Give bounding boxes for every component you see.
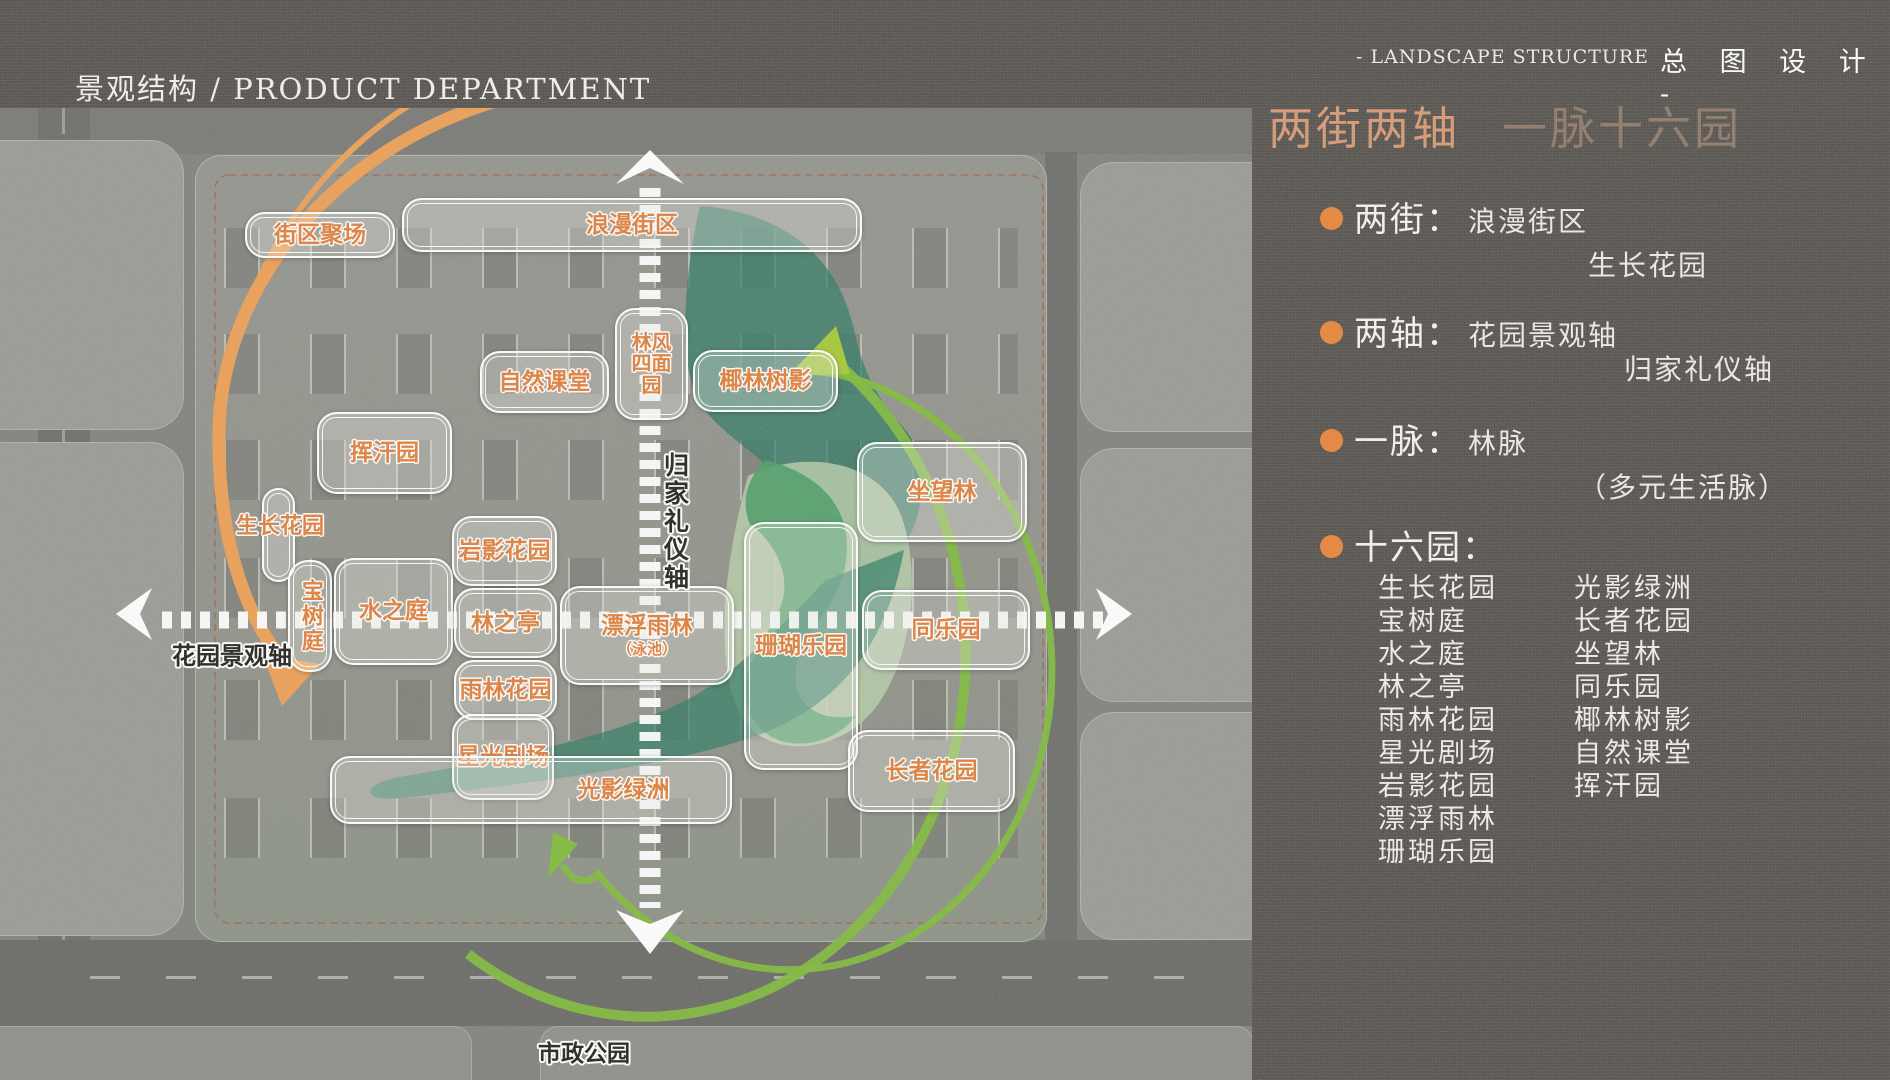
label-growth-garden-map: 生长花园	[220, 514, 340, 540]
label-block-plaza: 街区聚场	[245, 212, 395, 258]
map-label-text: 漂浮雨林	[601, 614, 693, 639]
label-nature-class: 自然课堂	[480, 351, 609, 413]
label-floating-rainforest: 漂浮雨林（泳池）	[560, 586, 734, 685]
map-label-text: 生长花园	[236, 515, 324, 539]
map-label-text: 长者花园	[886, 759, 978, 784]
label-light-shadow-oasis: 光影绿洲	[330, 756, 732, 824]
label-garden-landscape-axis: 花园景观轴	[156, 640, 308, 672]
map-label-text: 水之庭	[359, 599, 428, 624]
label-forest-pavilion: 林之亭	[454, 588, 557, 658]
label-water-court: 水之庭	[334, 558, 453, 665]
map-label-text: 街区聚场	[274, 223, 366, 248]
map-label-text: 坐望林	[908, 480, 977, 505]
map-label-text: 林之亭	[471, 611, 540, 636]
label-coconut-grove: 椰林树影	[693, 350, 838, 412]
site-plan-map: 街区聚场浪漫街区林风四面园自然课堂椰林树影挥汗园坐望林生长花园宝树庭水之庭岩影花…	[0, 108, 1252, 1080]
map-label-text: 雨林花园	[460, 678, 552, 703]
legend-panel: 两街两轴一脉十六园	[1252, 0, 1890, 1080]
map-label-text: 珊瑚乐园	[755, 634, 847, 659]
heading-primary: 两街两轴	[1268, 102, 1460, 155]
label-sweat-garden: 挥汗园	[317, 412, 452, 494]
map-label-text: 宝树庭	[298, 579, 322, 654]
slide: 景观结构 / PRODUCT DEPARTMENT - LANDSCAPE ST…	[0, 0, 1890, 1080]
map-label-text: 光影绿洲	[578, 778, 670, 803]
map-label-text: 花园景观轴	[172, 643, 292, 669]
map-label-text: 同乐园	[912, 618, 981, 643]
label-together-park: 同乐园	[862, 590, 1030, 670]
label-romance-street: 浪漫街区	[402, 198, 862, 252]
label-rainforest-garden: 雨林花园	[454, 660, 557, 720]
label-sit-view-forest: 坐望林	[857, 442, 1027, 542]
map-label-text: 市政公园	[538, 1042, 630, 1067]
map-label-text: 归家礼仪轴	[662, 452, 689, 592]
map-label-text: 浪漫街区	[586, 213, 678, 238]
map-label-text: 椰林树影	[720, 369, 812, 394]
map-label-text: 林风四面园	[632, 332, 672, 397]
label-municipal-park: 市政公园	[528, 1038, 640, 1070]
label-homecoming-axis: 归家礼仪轴	[656, 434, 694, 609]
header-subtitle-en: - LANDSCAPE STRUCTURE	[1356, 46, 1649, 68]
label-elder-garden: 长者花园	[848, 730, 1015, 812]
label-rock-shadow-garden: 岩影花园	[452, 516, 557, 586]
label-linfeng-simian-garden: 林风四面园	[615, 308, 688, 420]
map-labels-layer: 街区聚场浪漫街区林风四面园自然课堂椰林树影挥汗园坐望林生长花园宝树庭水之庭岩影花…	[0, 108, 1252, 1080]
page-title: 景观结构 / PRODUCT DEPARTMENT	[75, 66, 651, 108]
map-label-text: 自然课堂	[499, 370, 591, 395]
label-coral-park: 珊瑚乐园	[744, 522, 858, 770]
map-label-subtext: （泳池）	[617, 641, 677, 657]
header-title-right: 总 图 设 计 -	[1660, 40, 1890, 110]
map-label-text: 岩影花园	[459, 539, 551, 564]
map-label-text: 挥汗园	[350, 441, 419, 466]
